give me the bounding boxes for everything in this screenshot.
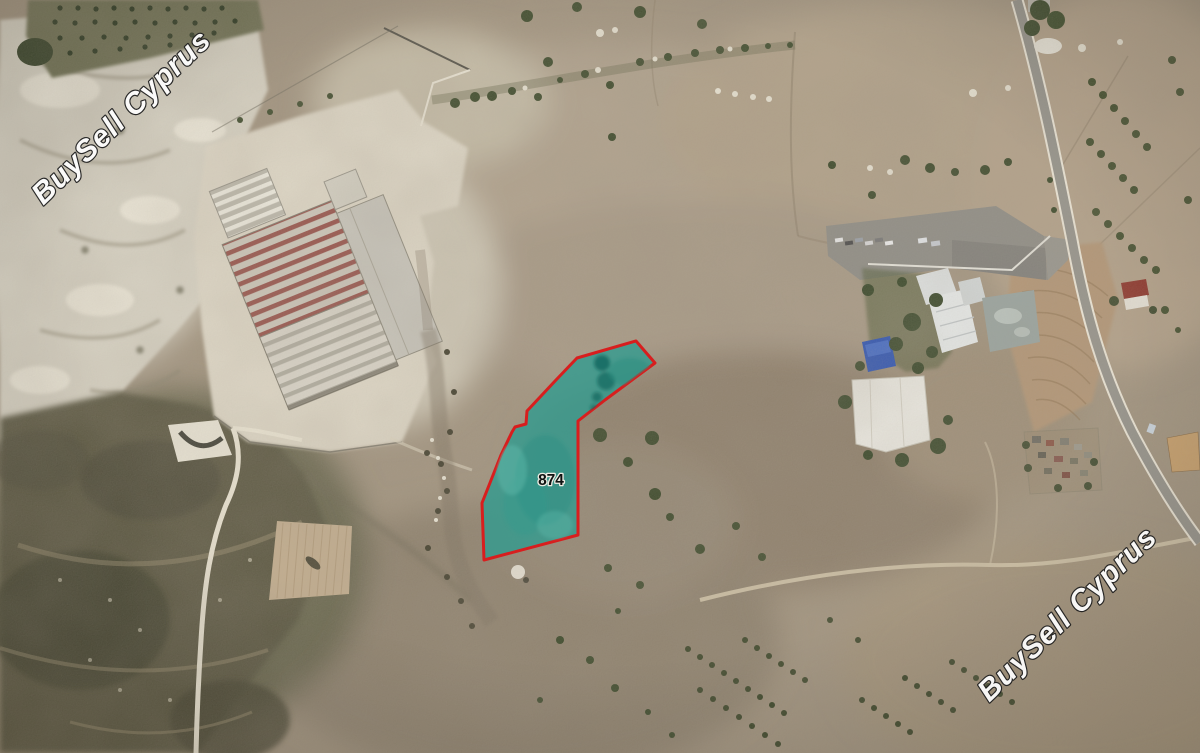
satellite-photo-stage: 874 BuySell Cyprus BuySell Cyprus — [0, 0, 1200, 753]
satellite-map-image[interactable]: 874 BuySell Cyprus BuySell Cyprus — [0, 0, 1200, 753]
parcel-number-label: 874 — [538, 472, 564, 489]
